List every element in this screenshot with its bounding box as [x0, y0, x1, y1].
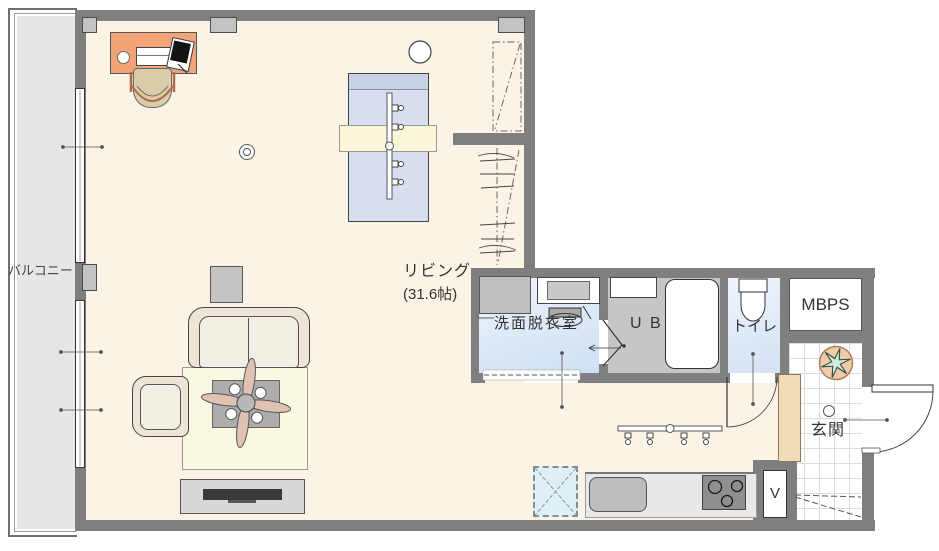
stove — [702, 475, 746, 510]
balcony-window-upper — [75, 88, 85, 263]
kitchen-sink — [589, 477, 647, 512]
meter-box-label: MBPS — [789, 295, 862, 315]
bed-throw — [339, 125, 437, 152]
balcony-label: バルコニー — [8, 260, 78, 279]
wall-washroom-bath-upper — [599, 268, 608, 320]
wall-wet-section-top — [471, 268, 875, 278]
toilet-label: トイレ — [732, 315, 777, 336]
desk-mug — [117, 51, 130, 64]
balcony-window-lower — [75, 300, 85, 468]
wall-top — [75, 10, 535, 21]
tv-stand — [228, 500, 256, 503]
sofa-cushions — [199, 316, 299, 368]
shoe-cabinet — [778, 374, 801, 462]
washing-machine-space — [479, 276, 531, 314]
pillar — [82, 17, 97, 33]
unit-bath-label: U B — [630, 315, 690, 333]
bath-counter — [610, 277, 657, 298]
pillar — [82, 264, 97, 291]
living-label: リビング — [403, 257, 471, 281]
entrance-label: 玄関 — [811, 416, 845, 440]
bed-pillow — [349, 74, 428, 90]
wall-toilet-mbps — [780, 268, 789, 383]
sofa-cushion-divider — [248, 318, 249, 366]
floor-plan: バルコニー リビング (31.6帖) 洗面脱衣室 U B トイレ MBPS 玄関… — [0, 0, 939, 551]
desk-chair — [133, 68, 172, 108]
refrigerator-space — [533, 466, 578, 517]
armchair-cushion — [140, 384, 181, 430]
vent-label: V — [763, 485, 787, 502]
wall-bath-toilet — [720, 268, 728, 383]
pillar — [210, 17, 237, 33]
washroom-label: 洗面脱衣室 — [494, 312, 579, 333]
tv — [203, 489, 282, 500]
wall-closet-stub — [453, 133, 535, 145]
living-size-label: (31.6帖) — [403, 283, 457, 304]
wall-washroom-bottom-left — [471, 373, 485, 383]
wall-mbps-bottom — [780, 331, 874, 343]
wall-washroom-left — [471, 268, 479, 383]
side-table — [210, 266, 243, 303]
coffee-table — [212, 380, 280, 428]
vanity-basin — [547, 281, 590, 300]
wall-right-outer — [862, 268, 874, 530]
wall-wet-bottom — [578, 373, 730, 383]
pillar — [498, 17, 525, 33]
